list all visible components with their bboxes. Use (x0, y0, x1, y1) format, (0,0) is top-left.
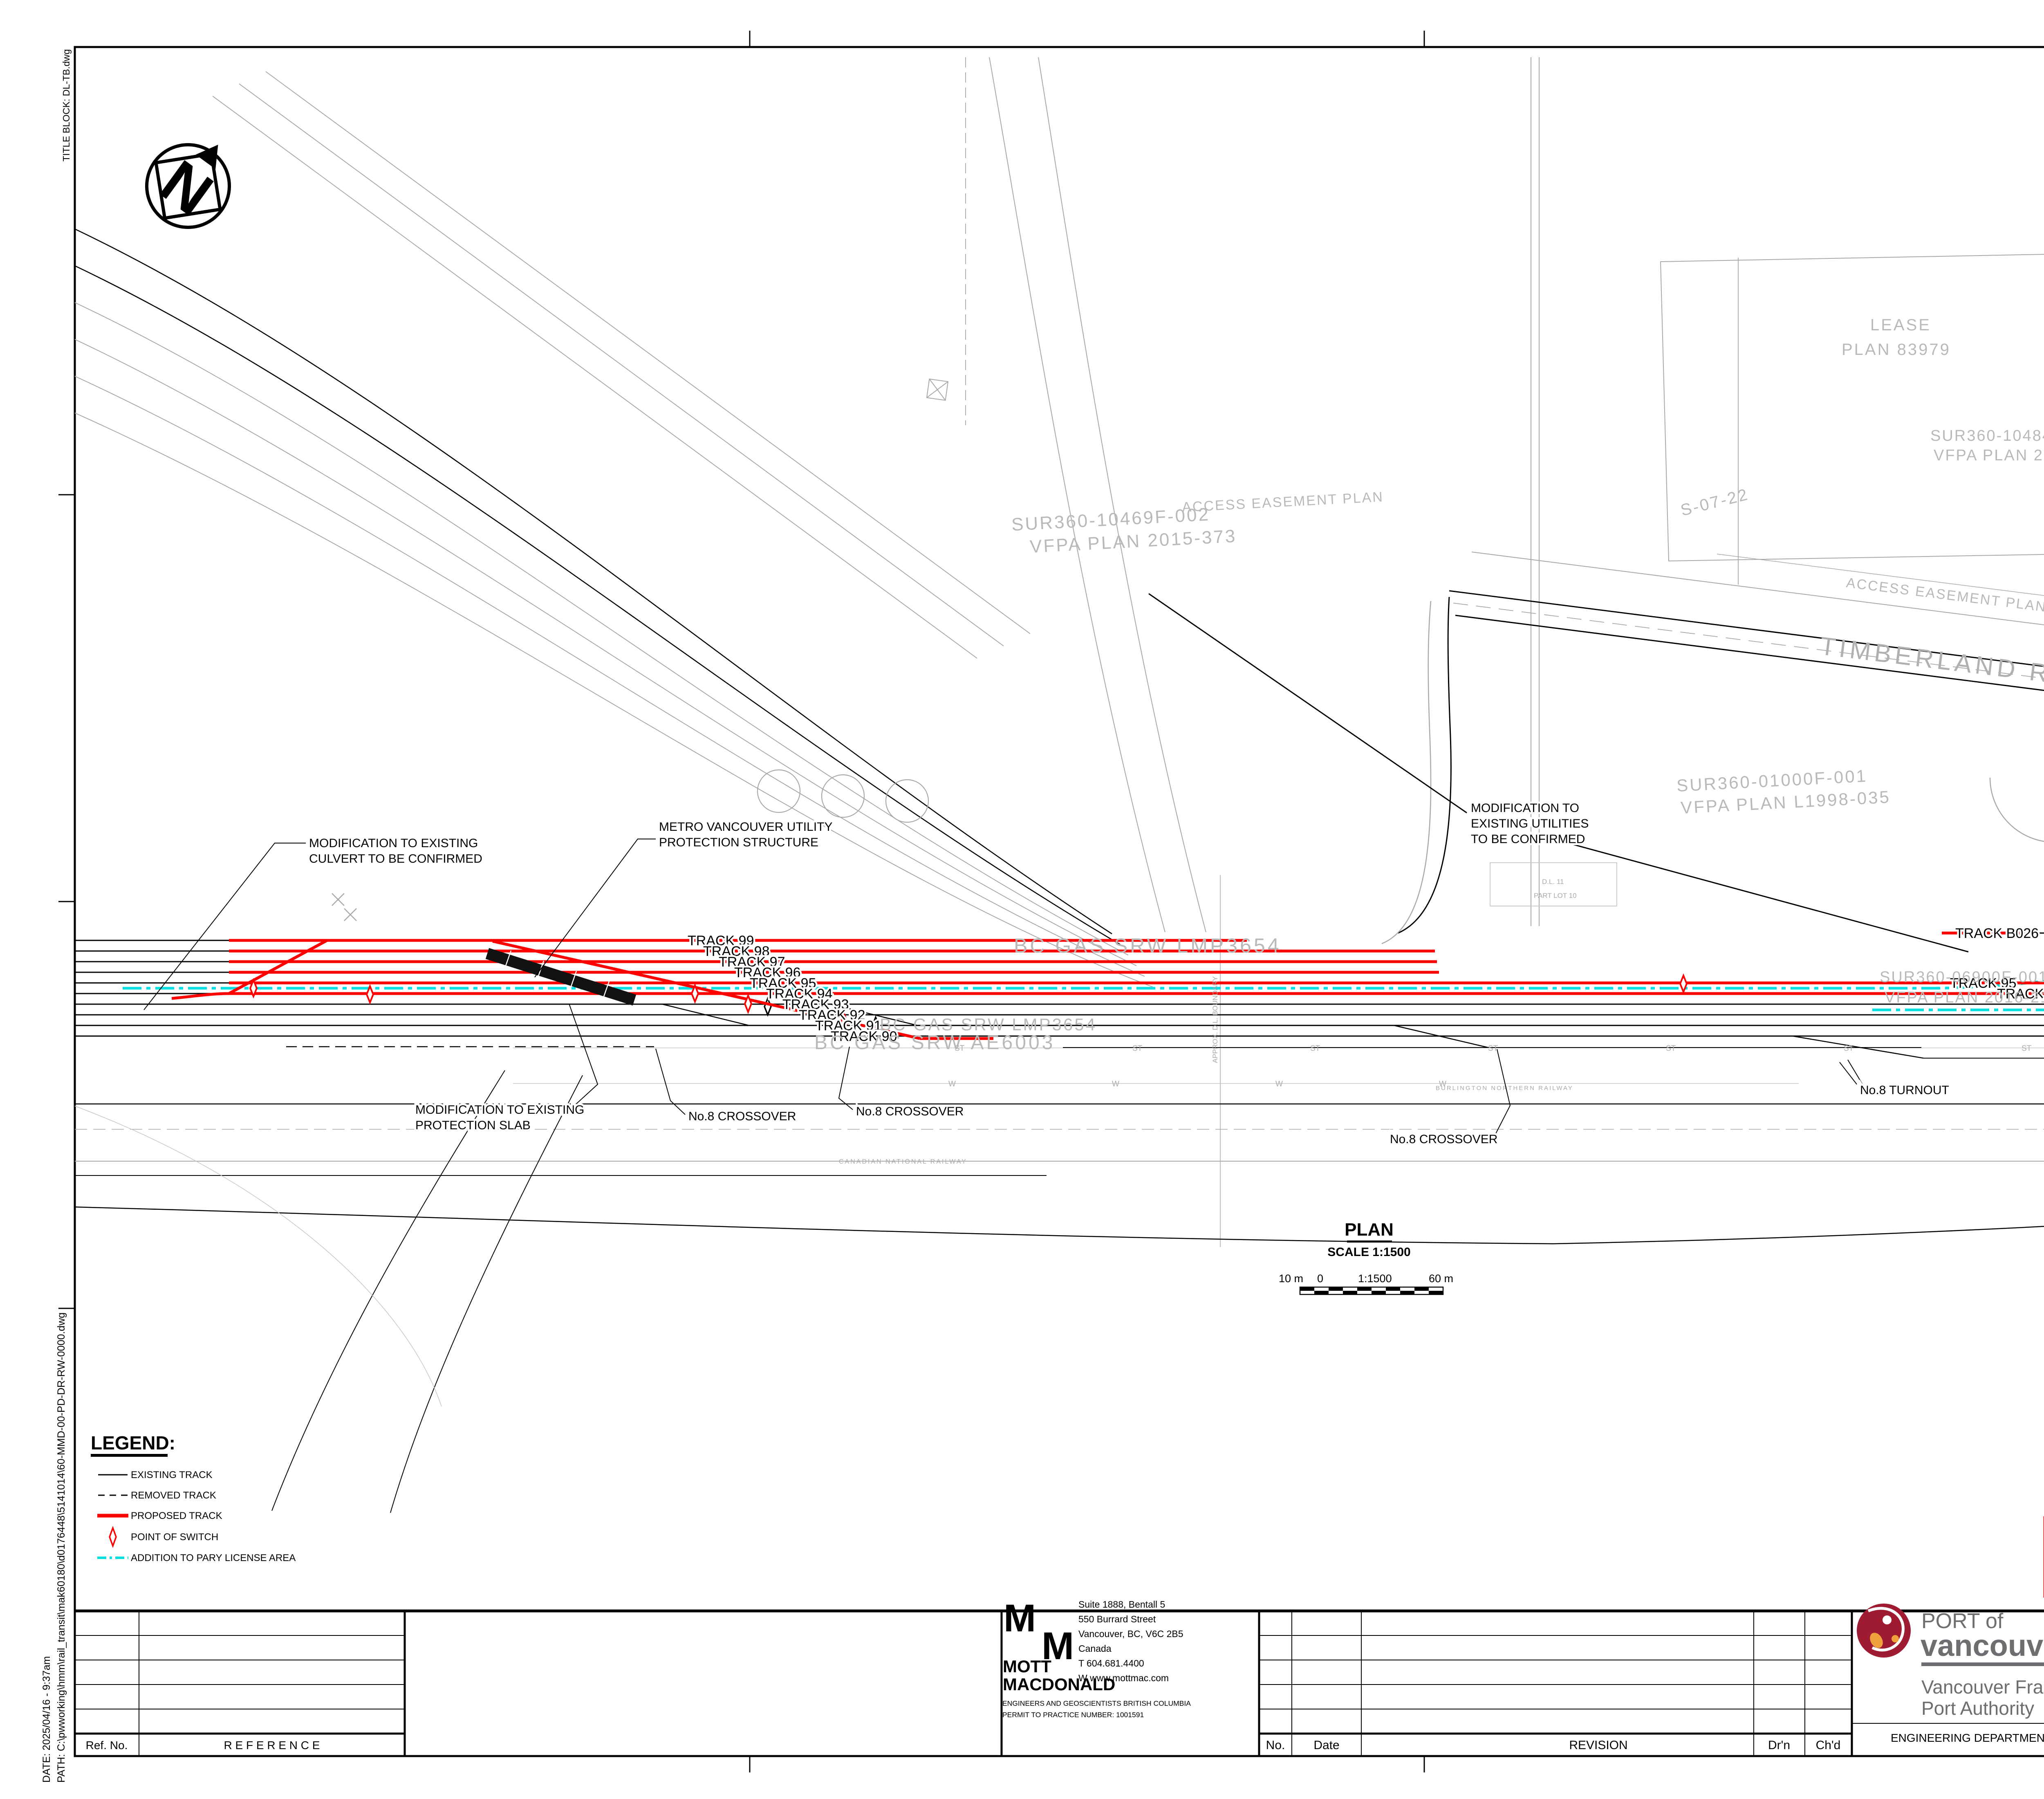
north-arrow: N (133, 121, 250, 242)
callout-crossover: No.8 CROSSOVER (1390, 1133, 1497, 1146)
revision-table: No. Date REVISION Dr'n Ch'd (1259, 1611, 1852, 1756)
w-label: W (1112, 1080, 1119, 1088)
ref-no-header: Ref. No. (86, 1739, 128, 1752)
legend: LEGEND: EXISTING TRACK REMOVED TRACK PRO… (91, 1432, 296, 1563)
mott-logo-m: M (1004, 1597, 1036, 1640)
parcel-label: SUR360-06900F-001 (1880, 969, 2044, 986)
callout-crossover: No.8 CROSSOVER (856, 1105, 964, 1118)
st-label: ST (1844, 1044, 1854, 1053)
callout-turnout8: No.8 TURNOUT (1860, 1083, 1949, 1097)
revision-header-chd: Ch'd (1816, 1738, 1841, 1752)
edge-note-titleblock: TITLE BLOCK: DL-TB.dwg (61, 49, 72, 162)
mott-address-line: T 604.681.4400 (1078, 1658, 1144, 1669)
legend-item-label: POINT OF SWITCH (131, 1532, 218, 1543)
parcel-label: SUR360-10484D-001 (1930, 427, 2044, 444)
scale-bar: 10 m 0 1:1500 60 m (1279, 1272, 1453, 1294)
mott-address-line: Vancouver, BC, V6C 2B5 (1078, 1629, 1183, 1639)
parcel-label: BC GAS SRW LMP3654 (1014, 934, 1282, 957)
parcel-label: VFPA PLAN 2016-215 (1885, 989, 2044, 1006)
callout-slab: PROTECTION SLAB (415, 1119, 531, 1132)
scalebar-label: 1:1500 (1358, 1272, 1392, 1285)
callout-utilities: MODIFICATION TO (1471, 801, 1579, 815)
mott-macdonald-block: M M MOTT MACDONALD Suite 1888, Bentall 5… (1002, 1597, 1191, 1719)
st-label: ST (1310, 1044, 1320, 1053)
parcel-label: BC GAS SRW LMP3654 (880, 1015, 1097, 1034)
parcel-label: ACCESS EASEMENT PLAN (1181, 489, 1384, 515)
revision-header-no: No. (1266, 1738, 1285, 1752)
scalebar-label: 60 m (1429, 1272, 1453, 1285)
mott-cert-line: ENGINEERS AND GEOSCIENTISTS BRITISH COLU… (1002, 1699, 1191, 1707)
title-block: Ref. No. R E F E R E N C E M M MOTT MACD… (75, 1597, 2044, 1759)
revision-header-date: Date (1313, 1738, 1339, 1752)
st-label: ST (1132, 1044, 1143, 1053)
port-of-vancouver-logo (1857, 1604, 1911, 1658)
sheet-border (58, 31, 2044, 1772)
callout-utilities: TO BE CONFIRMED (1471, 832, 1585, 846)
parcel-label: VFPA PLAN 2015-365 (1934, 447, 2044, 464)
parcel-label: LEASE (1870, 316, 1931, 334)
tiny-label: PART LOT 10 (1534, 892, 1577, 899)
callout-metro: PROTECTION STRUCTURE (659, 836, 818, 849)
parcel-label: PLAN 83979 (1842, 341, 1951, 359)
parcel-label: BC GAS SRW AE6003 (814, 1032, 1055, 1054)
w-label: W (948, 1080, 956, 1088)
mott-name: MOTT (1003, 1657, 1051, 1676)
callout-culvert: MODIFICATION TO EXISTING (309, 837, 478, 850)
legend-item-label: PROPOSED TRACK (131, 1510, 222, 1521)
mott-cert-line: PERMIT TO PRACTICE NUMBER: 1001591 (1002, 1711, 1144, 1719)
scalebar-label: 0 (1317, 1272, 1323, 1285)
drawing-sheet: TITLE BLOCK: DL-TB.dwg DATE: 2025/04/16 … (0, 0, 2044, 1799)
legend-item-label: REMOVED TRACK (131, 1490, 216, 1501)
mott-address-line: W www.mottmac.com (1078, 1673, 1169, 1683)
callouts: MODIFICATION TO EXISTING CULVERT TO BE C… (144, 594, 2044, 1146)
mott-address-line: Suite 1888, Bentall 5 (1078, 1599, 1165, 1610)
tiny-label: CANADIAN NATIONAL RAILWAY (839, 1158, 967, 1165)
tiny-label: BURLINGTON NORTHERN RAILWAY (1436, 1085, 1573, 1092)
tiny-label: APPROX. D.L. BOUNDARY (1211, 976, 1219, 1063)
legend-item-label: ADDITION TO PARY LICENSE AREA (131, 1552, 296, 1563)
edge-note-date: DATE: 2025/04/16 - 9:37am (41, 1656, 52, 1783)
legend-title: LEGEND: (91, 1432, 175, 1454)
parcel-labels: BC GAS SRW LMP3654 BC GAS SRW LMP3654 BC… (814, 316, 2044, 1054)
pov-org-line: Port Authority (1921, 1698, 2034, 1719)
w-label: W (1439, 1080, 1446, 1088)
site-plan-svg: TITLE BLOCK: DL-TB.dwg DATE: 2025/04/16 … (0, 0, 2044, 1799)
legend-item-label: EXISTING TRACK (131, 1469, 213, 1480)
callout-slab: MODIFICATION TO EXISTING (415, 1103, 584, 1117)
port-of-vancouver-block: PORT of vancouver Vancouver Fraser Port … (1852, 1604, 2044, 1744)
tiny-label: D.L. 11 (1542, 878, 1564, 886)
st-label: ST (2022, 1044, 2032, 1053)
pov-vancouver: vancouver (1921, 1629, 2044, 1662)
parcel-label: S-07-22 (1679, 485, 1751, 520)
callout-utilities: EXISTING UTILITIES (1471, 817, 1589, 830)
pov-department: ENGINEERING DEPARTMENT (1891, 1732, 2044, 1744)
st-label: ST (1488, 1044, 1498, 1053)
w-label: W (1275, 1080, 1283, 1088)
callout-crossover: No.8 CROSSOVER (688, 1110, 796, 1123)
st-label: ST (955, 1044, 965, 1053)
plan-scale: SCALE 1:1500 (1327, 1245, 1410, 1259)
revision-header-drn: Dr'n (1768, 1738, 1790, 1752)
mott-address-line: Canada (1078, 1643, 1112, 1654)
parcel-label: ACCESS EASEMENT PLAN 83979 (1845, 575, 2044, 621)
callout-metro: METRO VANCOUVER UTILITY (659, 820, 832, 834)
reference-header: R E F E R E N C E (224, 1739, 320, 1752)
plan-title: PLAN (1345, 1220, 1394, 1240)
edge-notes: TITLE BLOCK: DL-TB.dwg DATE: 2025/04/16 … (41, 49, 72, 1783)
edge-note-path: PATH: C:\pwworking\hmm\rail_transit\mak6… (56, 1312, 67, 1783)
callout-culvert: CULVERT TO BE CONFIRMED (309, 852, 482, 866)
reference-table: Ref. No. R E F E R E N C E (75, 1611, 405, 1756)
st-label: ST (1666, 1044, 1676, 1053)
track-label: TRACK B026 (1955, 926, 2039, 941)
scalebar-label: 10 m (1279, 1272, 1303, 1285)
pov-org-line: Vancouver Fraser (1921, 1676, 2044, 1698)
revision-header-revision: REVISION (1569, 1738, 1627, 1752)
mott-address-line: 550 Burrard Street (1078, 1614, 1156, 1624)
plan-title-block: PLAN SCALE 1:1500 10 m 0 1:1500 60 m (1279, 1220, 1453, 1294)
